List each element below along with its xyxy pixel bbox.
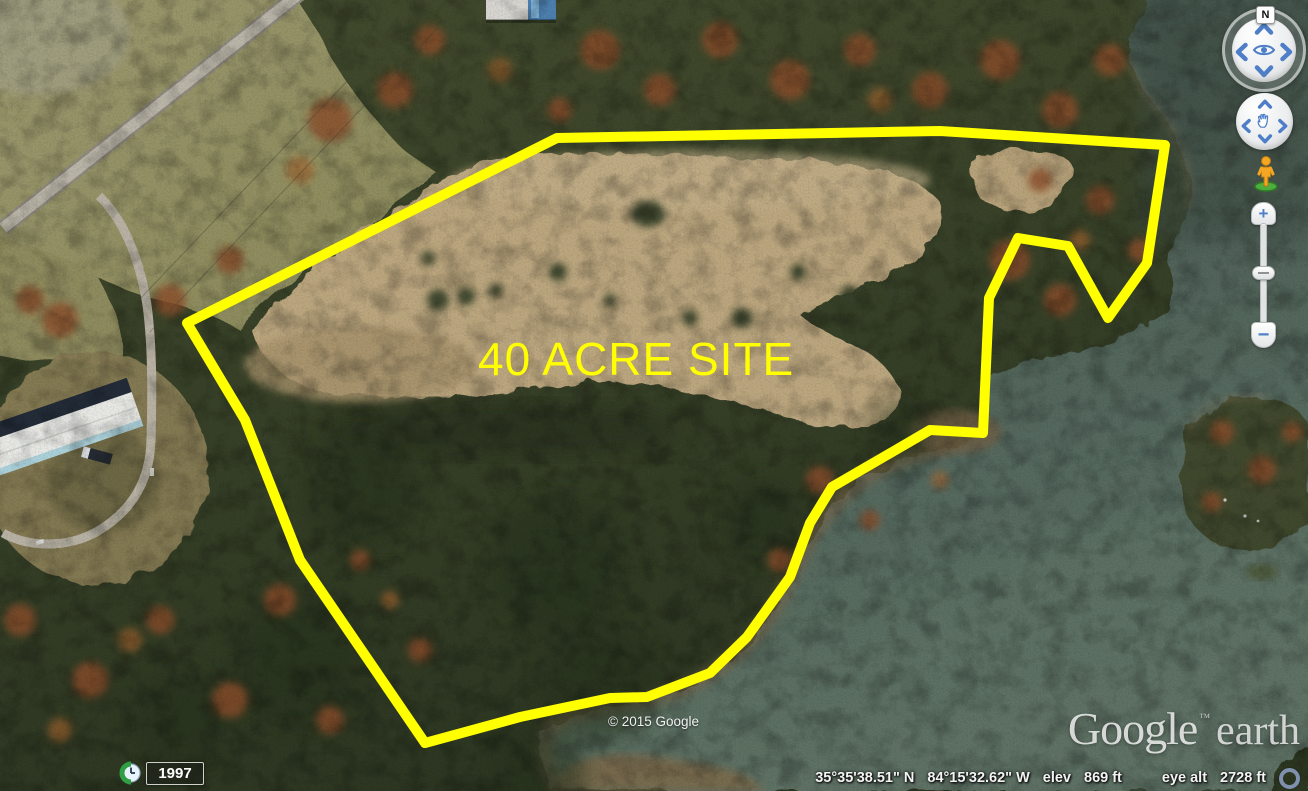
look-left-arrow[interactable] <box>1235 42 1253 62</box>
status-eye-alt-label: eye alt <box>1162 770 1207 786</box>
logo-trademark: ™ <box>1199 702 1210 724</box>
status-eye-alt-value: 2728 ft <box>1220 770 1266 786</box>
streaming-progress-ring-icon <box>1279 768 1300 789</box>
move-right-arrow[interactable] <box>1273 118 1291 134</box>
look-right-arrow[interactable] <box>1275 42 1293 62</box>
zoom-in-button[interactable]: + <box>1251 202 1276 225</box>
zoom-slider: + − <box>1250 202 1278 350</box>
eye-icon <box>1252 43 1276 62</box>
north-indicator[interactable]: N <box>1256 6 1275 24</box>
look-joystick-dial <box>1232 18 1296 82</box>
site-label: 40 ACRE SITE <box>478 332 794 386</box>
pan-hand-icon <box>1255 112 1273 135</box>
look-up-arrow[interactable] <box>1254 22 1274 40</box>
look-down-arrow[interactable] <box>1254 60 1274 78</box>
time-slider-clock-icon[interactable] <box>118 760 144 786</box>
google-earth-logo: Google ™ earth <box>1068 702 1300 755</box>
logo-earth: earth <box>1216 707 1300 755</box>
status-elev-label: elev <box>1043 770 1071 786</box>
status-longitude: 84°15'32.62" W <box>927 770 1029 786</box>
logo-google: Google <box>1068 702 1197 755</box>
aerial-photo-map-canvas[interactable] <box>0 0 1308 791</box>
zoom-out-button[interactable]: − <box>1251 322 1276 348</box>
zoom-slider-handle[interactable] <box>1252 266 1275 280</box>
move-left-arrow[interactable] <box>1238 118 1256 134</box>
imagery-date-box: 1997 <box>146 762 204 785</box>
google-earth-window: 40 ACRE SITE © 2015 Google Google ™ eart… <box>0 0 1308 791</box>
status-latitude: 35°35'38.51" N <box>815 770 914 786</box>
street-view-pegman-icon[interactable] <box>1251 154 1281 192</box>
copyright-text: © 2015 Google <box>608 714 699 729</box>
move-joystick[interactable] <box>1236 93 1293 150</box>
status-elev-value: 869 ft <box>1084 770 1122 786</box>
